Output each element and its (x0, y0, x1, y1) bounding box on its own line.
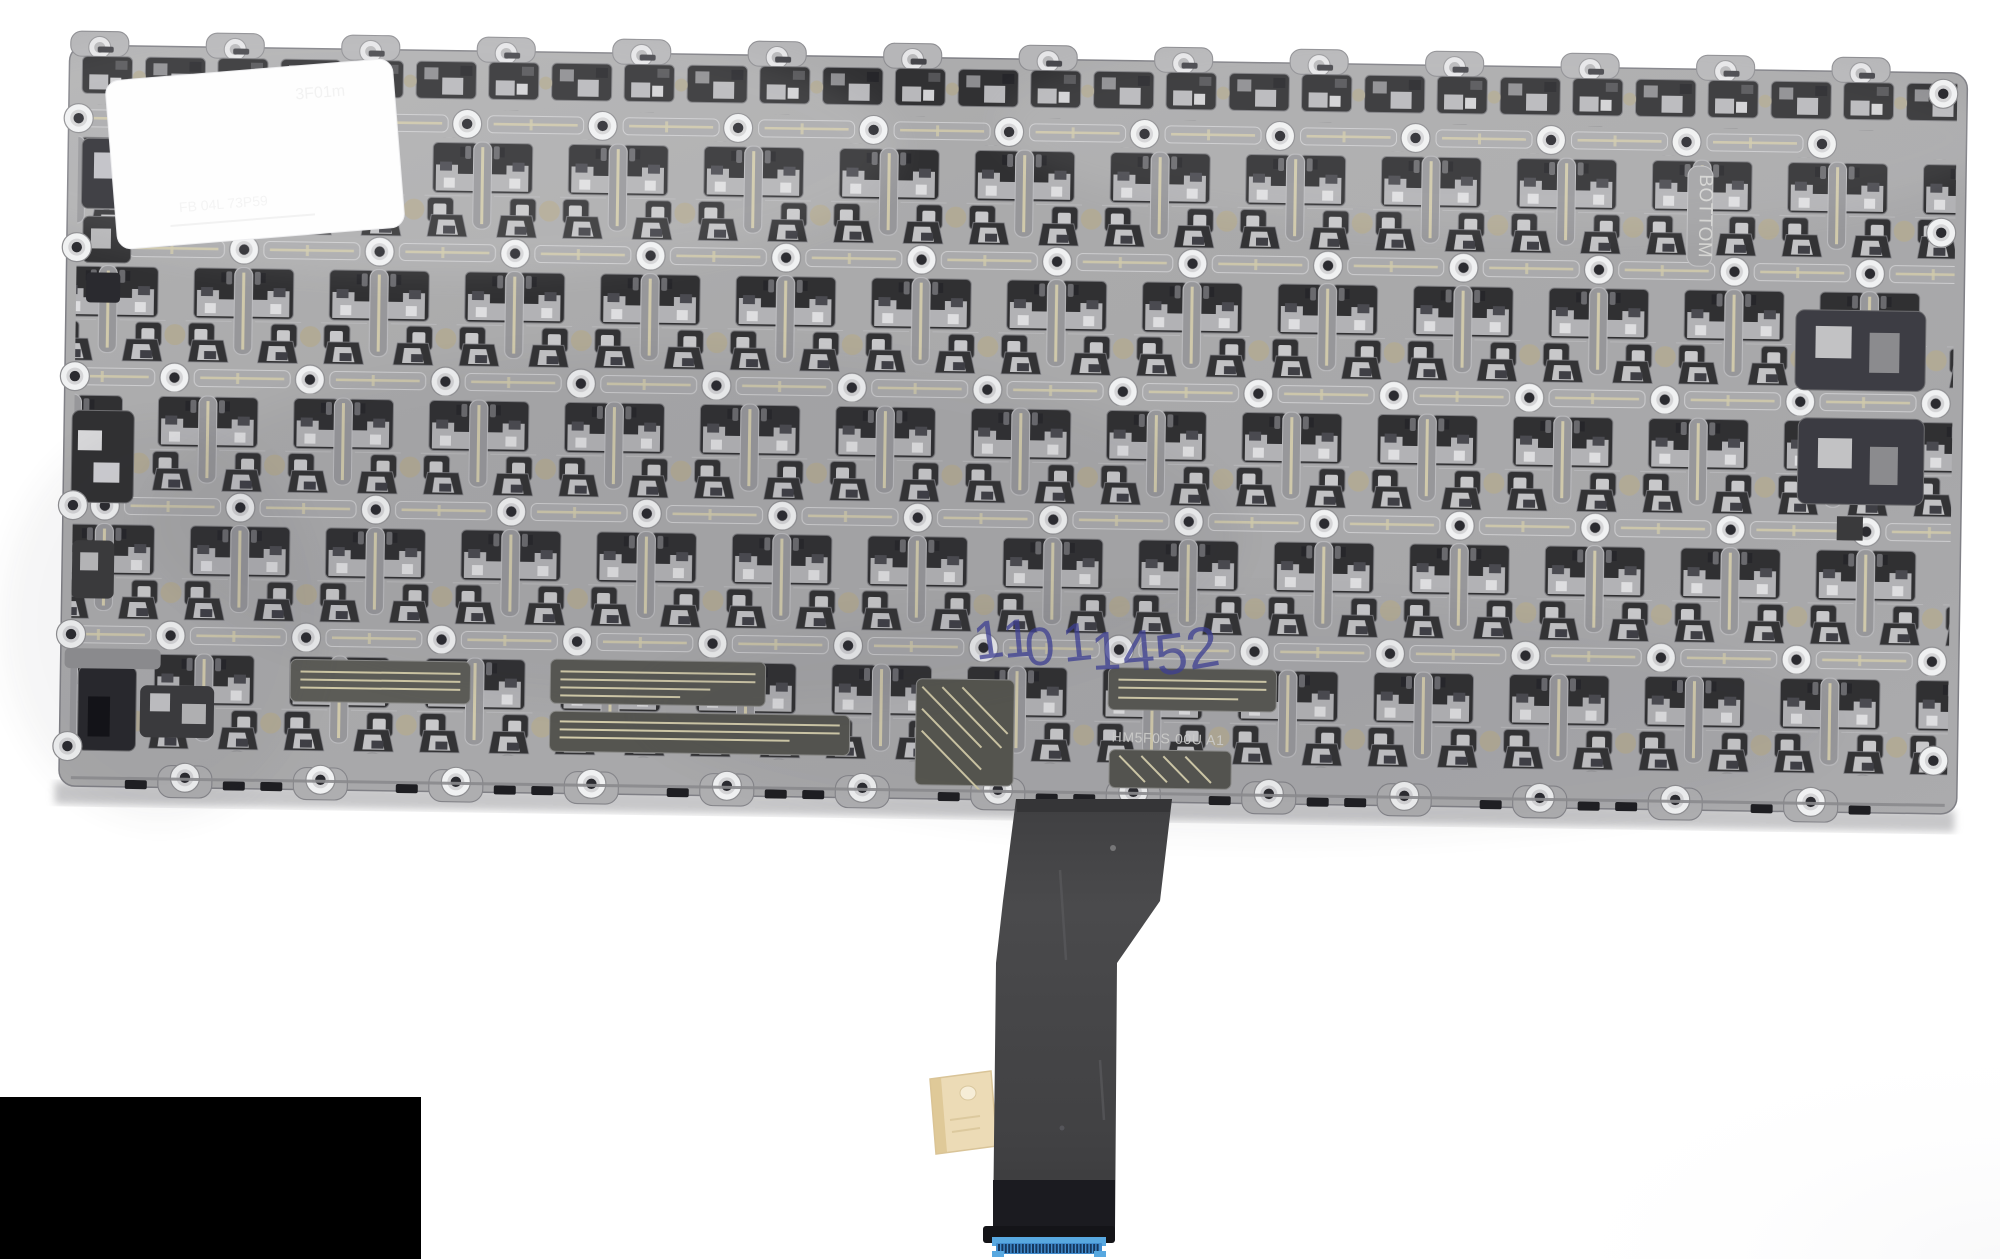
svg-text:0: 0 (1023, 616, 1057, 678)
svg-text:1: 1 (1089, 620, 1122, 681)
